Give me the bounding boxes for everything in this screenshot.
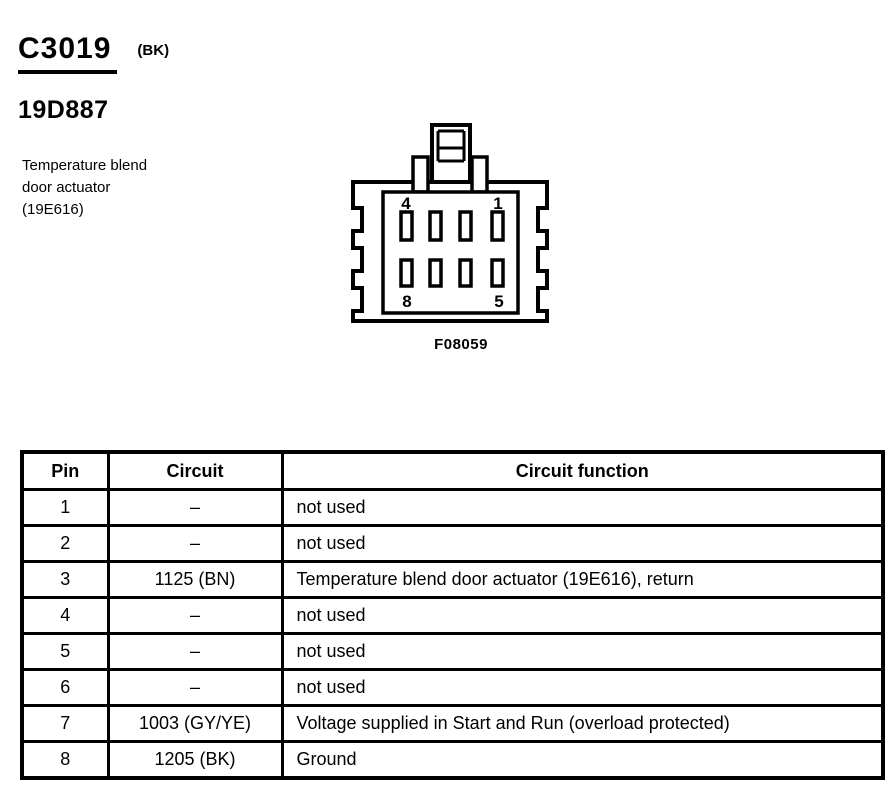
function-cell: Temperature blend door actuator (19E616)… — [282, 562, 883, 598]
pin-slot — [492, 260, 503, 286]
component-label-line: (19E616) — [22, 199, 147, 221]
circuit-cell: – — [108, 598, 282, 634]
circuit-cell: – — [108, 670, 282, 706]
pin-number-top-left: 4 — [401, 194, 411, 213]
table-row: 4 – not used — [22, 598, 883, 634]
pin-slot — [492, 212, 503, 240]
function-cell: not used — [282, 634, 883, 670]
header-section: C3019 (BK) — [18, 32, 169, 74]
function-cell: not used — [282, 490, 883, 526]
col-header-pin: Pin — [22, 452, 108, 490]
page: C3019 (BK) 19D887 Temperature blend door… — [0, 0, 888, 800]
pinout-table-body: 1 – not used 2 – not used 3 1125 (BN) Te… — [22, 490, 883, 779]
circuit-cell: 1125 (BN) — [108, 562, 282, 598]
circuit-cell: 1205 (BK) — [108, 742, 282, 779]
pin-slot — [430, 260, 441, 286]
table-row: 1 – not used — [22, 490, 883, 526]
pin-cell: 6 — [22, 670, 108, 706]
component-label: Temperature blend door actuator (19E616) — [22, 155, 147, 221]
connector-tab-right — [472, 157, 487, 192]
part-number: 19D887 — [18, 96, 109, 125]
table-header-row: Pin Circuit Circuit function — [22, 452, 883, 490]
pin-number-top-right: 1 — [493, 194, 502, 213]
table-row: 5 – not used — [22, 634, 883, 670]
function-cell: not used — [282, 598, 883, 634]
function-cell: Ground — [282, 742, 883, 779]
circuit-cell: – — [108, 634, 282, 670]
pin-slot — [460, 212, 471, 240]
function-cell: not used — [282, 526, 883, 562]
pin-cell: 7 — [22, 706, 108, 742]
circuit-cell: 1003 (GY/YE) — [108, 706, 282, 742]
table-row: 6 – not used — [22, 670, 883, 706]
figure-caption: F08059 — [340, 336, 582, 353]
pin-cell: 5 — [22, 634, 108, 670]
connector-color-code: (BK) — [137, 42, 169, 59]
connector-diagram: 4 1 8 5 — [340, 110, 570, 360]
pin-slot — [460, 260, 471, 286]
function-cell: Voltage supplied in Start and Run (overl… — [282, 706, 883, 742]
pinout-table: Pin Circuit Circuit function 1 – not use… — [20, 450, 885, 780]
component-label-line: Temperature blend — [22, 155, 147, 177]
table-row: 8 1205 (BK) Ground — [22, 742, 883, 779]
function-cell: not used — [282, 670, 883, 706]
pin-slot — [401, 260, 412, 286]
connector-tab-left — [413, 157, 428, 192]
pin-cell: 2 — [22, 526, 108, 562]
pin-number-bottom-right: 5 — [494, 292, 503, 311]
pin-number-bottom-left: 8 — [402, 292, 411, 311]
pin-cell: 1 — [22, 490, 108, 526]
pin-cell: 8 — [22, 742, 108, 779]
pin-slot — [401, 212, 412, 240]
table-row: 2 – not used — [22, 526, 883, 562]
pin-slot — [430, 212, 441, 240]
pin-cell: 4 — [22, 598, 108, 634]
table-row: 3 1125 (BN) Temperature blend door actua… — [22, 562, 883, 598]
circuit-cell: – — [108, 526, 282, 562]
connector-id: C3019 — [18, 32, 117, 74]
pin-cell: 3 — [22, 562, 108, 598]
table-row: 7 1003 (GY/YE) Voltage supplied in Start… — [22, 706, 883, 742]
component-label-line: door actuator — [22, 177, 147, 199]
col-header-circuit: Circuit — [108, 452, 282, 490]
col-header-function: Circuit function — [282, 452, 883, 490]
circuit-cell: – — [108, 490, 282, 526]
